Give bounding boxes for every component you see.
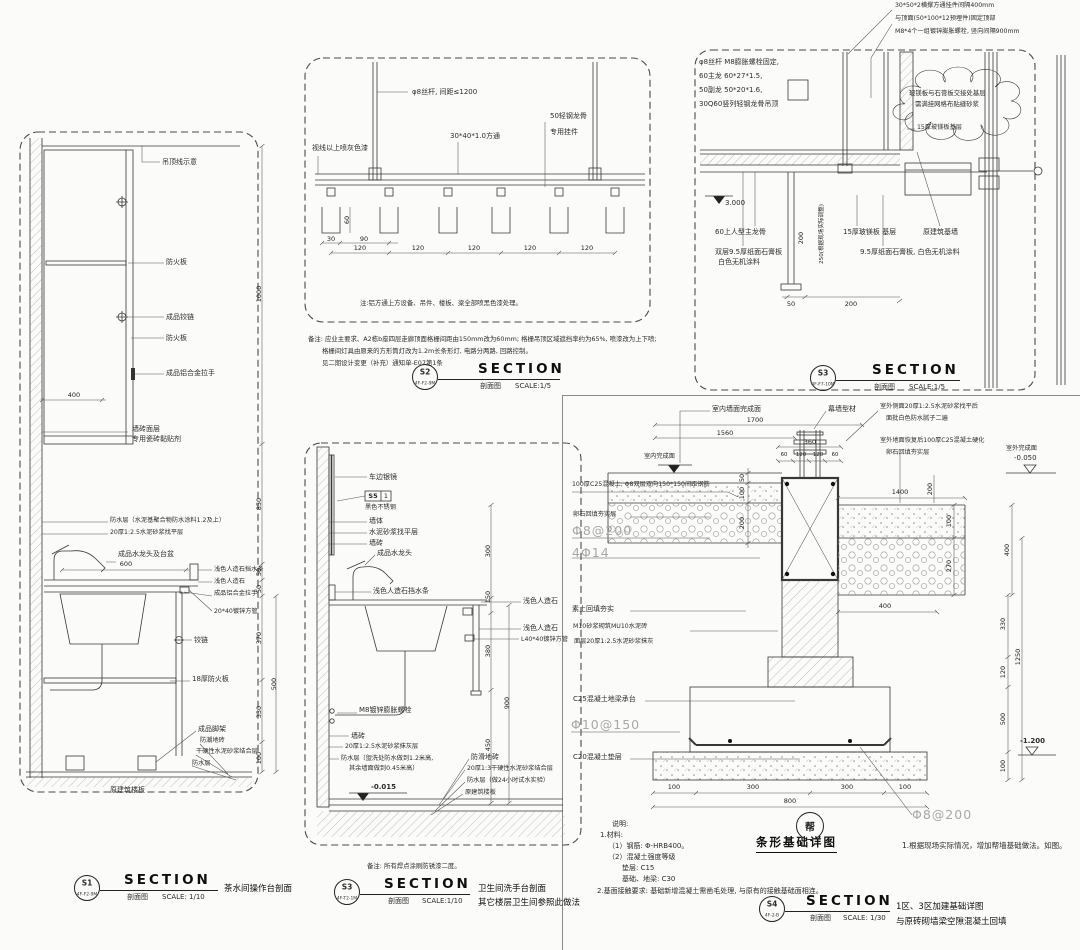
dim-850: 850 xyxy=(255,498,263,510)
vdim-200: 200 xyxy=(797,232,805,244)
dim-50a: 50 xyxy=(255,568,263,576)
label-waterproof-2: 其余墙面做到0.45米高） xyxy=(349,765,418,773)
s1-linework xyxy=(10,124,300,824)
label-slab: 原建筑楼板 xyxy=(465,789,496,797)
s2-linework xyxy=(300,50,660,395)
label-floor-tile: 防潮地砖 xyxy=(200,737,225,745)
badge-code-s3: 4F-F7-10M xyxy=(811,383,834,388)
dim-b300b: 300 xyxy=(841,783,853,791)
dim-150: 150 xyxy=(484,591,492,603)
label-waterproof-a: 防水层（水泥基聚合物防水涂料1.2及上） xyxy=(110,517,225,525)
label-out-plaster-1: 室外侧面20厚1:2.5水泥砂浆找平后 xyxy=(880,403,978,411)
s3-left-note-1: φ8丝杆 M8膨胀螺栓固定, xyxy=(699,58,779,67)
label-stone-b: 浅色人造石 xyxy=(523,624,558,633)
badge-code-s2: 4F-F2-9M xyxy=(415,382,435,387)
badge-id-s3: S3 xyxy=(818,369,829,378)
label-tile-adhesive: 专用瓷砖黏贴剂 xyxy=(132,435,181,444)
dim-500: 500 xyxy=(270,678,278,690)
badge-id-s4: S4 xyxy=(767,900,778,909)
dim-400: 400 xyxy=(68,391,80,399)
panel-s3-ceiling-wall-junction: 30*50*2横撑方通挂件间隔400mm 与顶面(50*100*12预埋件)固定… xyxy=(685,0,1080,400)
label-main-keel: 60上人型主龙骨 xyxy=(715,228,766,237)
badge-cn-s2: 剖面图 xyxy=(480,382,501,391)
s3-left-note-3: 50副龙 50*20*1.6, xyxy=(699,86,762,95)
dim-100c: 100 xyxy=(999,760,1007,772)
label-feet: 成品脚架 xyxy=(198,725,226,734)
material-tag-id: S5 xyxy=(368,492,377,500)
material-tag-no: 1 xyxy=(384,492,388,500)
dim-330: 330 xyxy=(999,618,1007,630)
label-face-plaster: 面层20厚1:2.5水泥砂浆抹灰 xyxy=(574,638,653,646)
dim-b100a: 100 xyxy=(668,783,680,791)
label-wall-body: 墙体 xyxy=(369,517,383,526)
badge-section-s4: SECTION xyxy=(806,893,893,909)
badge-scale-s3: SCALE:1/5 xyxy=(909,383,945,392)
label-fire-board-a: 防火板 xyxy=(166,258,187,267)
label-wall-tile-a: 墙砖 xyxy=(369,539,383,548)
detail-title: 条形基础详图 xyxy=(756,834,837,853)
label-hinge-a: 成品铰链 xyxy=(166,313,194,322)
badge-cn-s1: 剖面图 xyxy=(127,893,148,902)
s3-left-note-4: 30Q60竖列轻钢龙骨吊顶 xyxy=(699,100,778,109)
badge-line-s4 xyxy=(785,911,890,912)
dim-1250: 1250 xyxy=(1014,649,1022,666)
badge-caption-vanity-2: 其它楼层卫生间参照此做法 xyxy=(478,896,580,908)
s2-remark-1: 备注: 应业主要求、A2栋b座四层走廊顶面格栅间距由150mm改为60mm; 格… xyxy=(308,334,657,343)
dim-1400: 1400 xyxy=(892,488,909,496)
label-leveling: 水泥砂浆找平层 xyxy=(369,528,418,537)
elevation-minus-0015: -0.015 xyxy=(371,783,396,792)
badge-line-s2 xyxy=(438,379,560,380)
s2-note: 注:铝方通上方设备、吊件、楼板、梁全部喷黑色漆处理。 xyxy=(360,298,522,307)
dim-120-4: 120 xyxy=(524,244,536,252)
label-antislip-tile: 防滑地砖 xyxy=(471,753,499,762)
rebar-phi8-200-top: Φ8@200 xyxy=(572,523,632,538)
panel-s2-grille-ceiling: φ8丝杆, 间距≤1200 30*40*1.0方通 50轻钢龙骨 专用挂件 视线… xyxy=(300,50,660,395)
badge-section-vanity: SECTION xyxy=(384,876,471,892)
s3-top-note-3: M8*4个一组镀锌膨胀螺栓, 竖向间隔900mm xyxy=(895,28,1020,36)
label-screed: 20厚1:2.5水泥砂浆找平层 xyxy=(110,529,183,537)
rebar-phi8-200-bottom: Φ8@200 xyxy=(912,807,972,822)
dim-50b: 50 xyxy=(255,585,263,593)
badge-code-s4: 4F-2-B xyxy=(765,914,779,919)
label-out-ground-2: 卵石回填夯实层 xyxy=(886,449,929,457)
label-pebble-fill: 卵石回填夯实层 xyxy=(573,511,616,519)
dim-b100b: 100 xyxy=(899,783,911,791)
label-wall-tile-b: 墙砖 xyxy=(351,732,365,741)
badge-code-s1: 4F-F2-9M xyxy=(77,893,97,898)
dim-50: 50 xyxy=(738,474,746,482)
badge-scale-s4: SCALE: 1/30 xyxy=(843,914,886,923)
badge-id-s1: S1 xyxy=(82,879,93,888)
badge-line-s1 xyxy=(100,890,218,891)
badge-section-s3: SECTION xyxy=(872,362,959,378)
label-waterproof-3: 防水层（做24小时试水实验） xyxy=(467,777,549,785)
label-special-clip: 专用挂件 xyxy=(550,128,578,137)
badge-section-s2: SECTION xyxy=(478,361,565,377)
label-existing-wall: 原建筑基墙 xyxy=(923,228,958,237)
dim-380: 380 xyxy=(484,645,492,657)
label-hinge-b: 铰链 xyxy=(194,636,208,645)
s1-structure xyxy=(26,138,252,787)
dim-120c: 120 xyxy=(999,666,1007,678)
s1-dashed-border xyxy=(20,132,258,792)
badge-scale-s1: SCALE: 1/10 xyxy=(162,893,205,902)
dim-200a: 200 xyxy=(738,517,746,529)
label-handle-b: 成品铝合金拉手 xyxy=(214,590,257,598)
label-soil-fill: 素土回填夯实 xyxy=(572,605,614,614)
s2-dashed-border xyxy=(305,58,650,322)
label-light-keel: 50轻钢龙骨 xyxy=(550,112,587,121)
elevation-minus-0050: -0.050 xyxy=(1014,454,1037,463)
detail-title-note: 1.根据现场实际情况，增加帮墙基础做法。如图。 xyxy=(902,841,1067,850)
dim-b300a: 300 xyxy=(747,783,759,791)
badge-id-vanity: S3 xyxy=(342,883,353,892)
dim-1560: 1560 xyxy=(717,429,734,437)
label-grade-beam: C25混凝土地梁承台 xyxy=(573,695,636,704)
dim-400-vertical: 400 xyxy=(1003,544,1011,556)
dim-500: 500 xyxy=(999,713,1007,725)
dim-900: 900 xyxy=(503,697,511,709)
label-gypsum-single: 9.5厚纸面石膏板, 白色无机涂料 xyxy=(860,248,960,257)
s5-note: 备注: 所有焊点涂刷防锈漆二度。 xyxy=(367,861,461,870)
s2-remark-2: 格栅间灯具由原来的方形筒灯改为1.2m长条形灯, 电路分两路, 回路控制。 xyxy=(322,346,532,355)
dim-270: 270 xyxy=(945,560,953,572)
badge-cn-s3: 剖面图 xyxy=(874,383,895,392)
badge-caption-s4-2: 与原砖砌墙梁空隙混凝土回填 xyxy=(896,915,1007,927)
dim-330: 330 xyxy=(255,706,263,718)
label-handle-a: 成品铝合金拉手 xyxy=(166,369,215,378)
s4-note-title: 说明: xyxy=(612,820,628,829)
rebar-phi10-150: Φ10@150 xyxy=(571,717,640,732)
badge-cn-vanity: 剖面图 xyxy=(388,897,409,906)
badge-code-vanity: 4F-T2-1M xyxy=(337,897,357,902)
label-faucet: 成品水龙头 xyxy=(377,549,412,558)
label-slab-100-c25: 100厚C25混凝土, Φ8双层双向150*150间距钢筋 xyxy=(572,481,710,489)
dim-200: 200 xyxy=(845,300,857,308)
badge-id-s2: S2 xyxy=(420,368,431,377)
elevation-3000: 3.000 xyxy=(725,199,745,208)
s4-note-surface: 2.基面接触要求: 基础新增混凝土需凿毛处理, 与原有的接触基础面相连。 xyxy=(597,887,823,896)
label-mg-base: 15厚玻镁板 基层 xyxy=(843,228,896,237)
dim-90: 90 xyxy=(360,235,368,243)
s4-note-cushion-grade: 垫层: C15 xyxy=(622,864,654,873)
label-ceiling-line: 吊顶线示意 xyxy=(162,158,197,167)
label-indoor-wall-finish: 室内墙面完成面 xyxy=(712,405,761,414)
badge-line-s3 xyxy=(836,380,960,381)
dim-120a: 120 xyxy=(796,452,806,458)
dim-100b: 100 xyxy=(945,515,953,527)
label-bond-layer: 干硬性水泥砂浆结合层 xyxy=(196,748,258,756)
badge-section-s1: SECTION xyxy=(124,872,211,888)
s1-leaders-dims xyxy=(40,144,279,780)
dim-1700: 1700 xyxy=(747,416,764,424)
s3-cloud-note-2: 需满挂网格布贴缝砂浆 xyxy=(915,99,979,108)
label-fire-board-b: 防火板 xyxy=(166,334,187,343)
badge-caption-s1: 茶水间操作台剖面 xyxy=(224,882,292,894)
label-gray-paint: 视线以上喷灰色漆 xyxy=(312,144,368,153)
label-stone-a: 浅色人造石 xyxy=(523,597,558,606)
dim-60: 60 xyxy=(343,216,351,224)
label-faucet-basin: 成品水龙头及台盆 xyxy=(118,550,174,559)
s3-top-note-2: 与顶面(50*100*12预埋件)固定顶部 xyxy=(895,15,995,23)
label-indoor-finish-level: 室内完成面 xyxy=(644,453,675,461)
badge-scale-vanity: SCALE:1/10 xyxy=(422,897,463,906)
badge-line-vanity xyxy=(360,894,470,895)
label-mg-board-15: 15厚玻镁板基层 xyxy=(917,124,962,132)
dim-600: 600 xyxy=(120,560,132,568)
s4-note-base-grade: 基础、地梁: C30 xyxy=(622,875,675,884)
dim-30: 30 xyxy=(327,235,335,243)
s3-left-note-2: 60主龙 60*27*1.5, xyxy=(699,72,762,81)
label-mirror: 车边银镜 xyxy=(369,473,397,482)
drawing-sheet: 吊顶线示意 防火板 成品铰链 防火板 成品铝合金拉手 400 墙砖面层 专用瓷砖… xyxy=(0,0,1080,950)
label-outdoor-finish-level: 室外完成面 xyxy=(1006,445,1037,453)
label-out-plaster-2: 面批白色防水腻子二遍 xyxy=(886,415,948,423)
panel-s1-pantry-counter: 吊顶线示意 防火板 成品铰链 防火板 成品铝合金拉手 400 墙砖面层 专用瓷砖… xyxy=(10,124,300,824)
label-white-paint: 白色无机涂料 xyxy=(718,258,760,267)
dim-120b: 120 xyxy=(813,452,823,458)
label-splash-strip: 浅色人造石挡水条 xyxy=(373,587,429,596)
s3-top-note-1: 30*50*2横撑方通挂件间隔400mm xyxy=(895,2,994,10)
dim-120-1: 120 xyxy=(354,244,366,252)
label-black-stainless: 黑色不锈钢 xyxy=(365,504,396,512)
detail-bubble-char: 帮 xyxy=(805,819,815,834)
s3-cloud-note-1: 玻镁板与石膏板交接处基层 xyxy=(909,88,986,97)
label-stone: 浅色人造石 xyxy=(214,578,245,586)
dim-120-2: 120 xyxy=(412,244,424,252)
badge-caption-s4-1: 1区、3区加建基础详图 xyxy=(896,900,983,912)
dim-120-3: 120 xyxy=(468,244,480,252)
dim-360: 360 xyxy=(804,438,816,446)
dim-60b: 60 xyxy=(832,452,839,458)
dim-200b: 200 xyxy=(926,483,934,495)
panel-vanity-section: 车边银镜 S5 1 黑色不锈钢 墙体 水泥砂浆找平层 墙砖 成品水龙头 浅色人造… xyxy=(295,415,585,950)
label-hanger-rod: φ8丝杆, 间距≤1200 xyxy=(412,88,477,97)
rebar-4phi14: 4Φ14 xyxy=(572,545,610,560)
s4-note-rebar: （1）钢筋: Φ-HRB400。 xyxy=(608,842,688,851)
label-bond-layer: 20厚1:3干硬性水泥砂浆结合层 xyxy=(467,765,553,773)
s4-note-concrete: （2）混凝土强度等级 xyxy=(608,853,675,862)
label-plaster: 20厚1:2.5水泥砂浆抹灰层 xyxy=(345,743,418,751)
elevation-minus-1200: -1.200 xyxy=(1020,737,1045,746)
dim-120-5: 120 xyxy=(581,244,593,252)
label-out-ground-1: 室外地面恢复后100厚C25混凝土硬化 xyxy=(880,437,984,445)
dim-400-horizontal: 400 xyxy=(879,602,891,610)
dim-370: 370 xyxy=(255,632,263,644)
dim-300: 300 xyxy=(484,545,492,557)
label-wall-tile: 墙砖面层 xyxy=(132,425,160,434)
s4-note-material: 1.材料: xyxy=(600,831,623,840)
label-waterproof-b: 防水层 xyxy=(192,760,211,768)
label-steel-tube: 20*40镀锌方管 xyxy=(214,608,258,616)
dim-450: 450 xyxy=(484,739,492,751)
label-square-tube: 30*40*1.0方通 xyxy=(450,132,500,141)
dim-50: 50 xyxy=(787,300,795,308)
label-cushion-c20: C20混凝土垫层 xyxy=(573,753,622,762)
label-brick-masonry: M10砂浆砌筑MU10水泥砖 xyxy=(573,623,647,631)
dim-1000: 1000 xyxy=(255,286,263,303)
label-curtain-mullion: 幕墙型材 xyxy=(828,405,856,414)
dim-100: 100 xyxy=(255,752,263,764)
dim-60a: 60 xyxy=(781,452,788,458)
badge-scale-s2: SCALE:1/5 xyxy=(515,382,551,391)
badge-caption-vanity-1: 卫生间洗手台剖面 xyxy=(478,882,546,894)
label-waterproof-1: 防水层（盥洗处防水做到1.2米高, xyxy=(341,755,433,763)
label-gypsum-double: 双层9.5厚纸面石膏板 xyxy=(715,248,782,257)
label-slab: 原建筑楼板 xyxy=(110,786,145,795)
label-board-18: 18厚防火板 xyxy=(192,675,229,684)
badge-cn-s4: 剖面图 xyxy=(810,914,831,923)
dim-100a: 100 xyxy=(738,487,746,499)
label-anchor-bolt: M8镀锌膨胀螺栓 xyxy=(359,706,412,715)
dim-b800: 800 xyxy=(784,797,796,805)
vnote-250: 250(根据现场实际调整) xyxy=(817,204,825,264)
